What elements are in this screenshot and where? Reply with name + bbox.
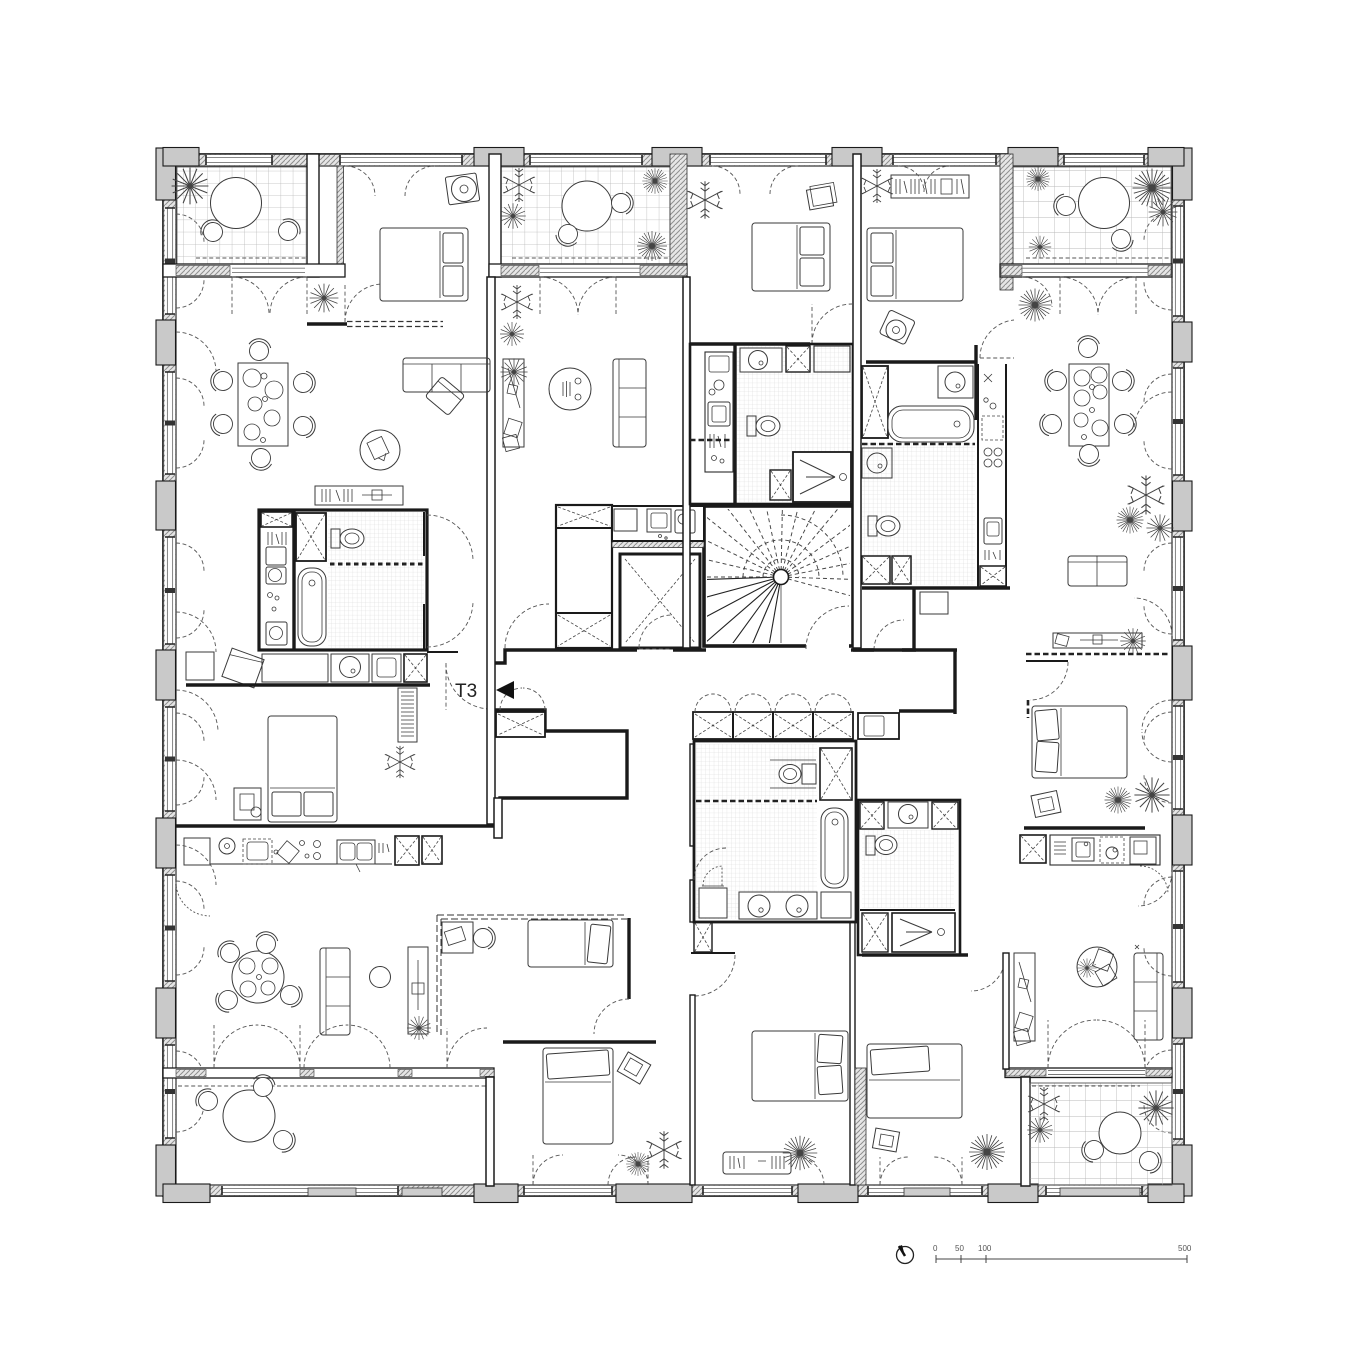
svg-text:T3: T3 [455,681,477,702]
svg-text:0: 0 [933,1244,938,1253]
svg-text:50: 50 [955,1244,964,1253]
svg-text:100: 100 [978,1244,992,1253]
svg-text:500: 500 [1178,1244,1192,1253]
